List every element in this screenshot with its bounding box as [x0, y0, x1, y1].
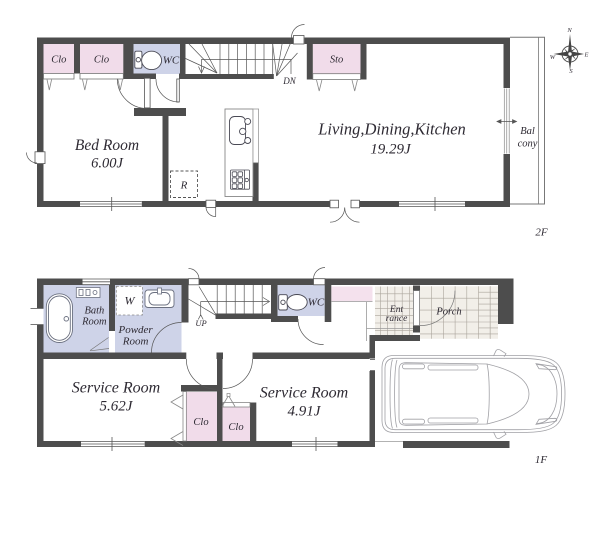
- svg-text:W: W: [125, 294, 136, 308]
- svg-text:N: N: [566, 27, 572, 34]
- svg-text:W: W: [550, 54, 556, 61]
- svg-text:Sto: Sto: [330, 55, 343, 66]
- svg-text:19.29J: 19.29J: [370, 142, 412, 158]
- svg-text:Porch: Porch: [435, 307, 461, 318]
- svg-text:Powder: Powder: [117, 324, 153, 336]
- svg-text:Clo: Clo: [94, 55, 109, 66]
- svg-text:6.00J: 6.00J: [91, 156, 123, 172]
- svg-text:5.62J: 5.62J: [100, 399, 134, 415]
- svg-text:Living,Dining,Kitchen: Living,Dining,Kitchen: [317, 120, 466, 139]
- svg-text:2F: 2F: [535, 227, 548, 239]
- svg-text:Clo: Clo: [193, 417, 208, 428]
- svg-text:R: R: [180, 180, 188, 192]
- svg-text:Service Room: Service Room: [72, 380, 160, 397]
- svg-text:Clo: Clo: [51, 55, 66, 66]
- svg-text:UP: UP: [195, 318, 206, 328]
- svg-text:Bed Room: Bed Room: [75, 137, 139, 154]
- svg-text:4.91J: 4.91J: [288, 404, 322, 420]
- svg-text:Bal: Bal: [520, 126, 535, 137]
- svg-text:1F: 1F: [535, 454, 548, 466]
- svg-text:WC: WC: [308, 297, 325, 309]
- svg-text:cony: cony: [518, 139, 538, 150]
- svg-text:Room: Room: [81, 317, 107, 328]
- svg-text:DN: DN: [282, 76, 296, 86]
- svg-text:Room: Room: [122, 336, 149, 348]
- svg-text:E: E: [584, 52, 589, 59]
- svg-text:WC: WC: [163, 55, 180, 67]
- svg-text:Bath: Bath: [84, 306, 104, 317]
- svg-text:Service Room: Service Room: [260, 385, 348, 402]
- svg-text:rance: rance: [386, 314, 408, 324]
- svg-text:Clo: Clo: [228, 422, 243, 433]
